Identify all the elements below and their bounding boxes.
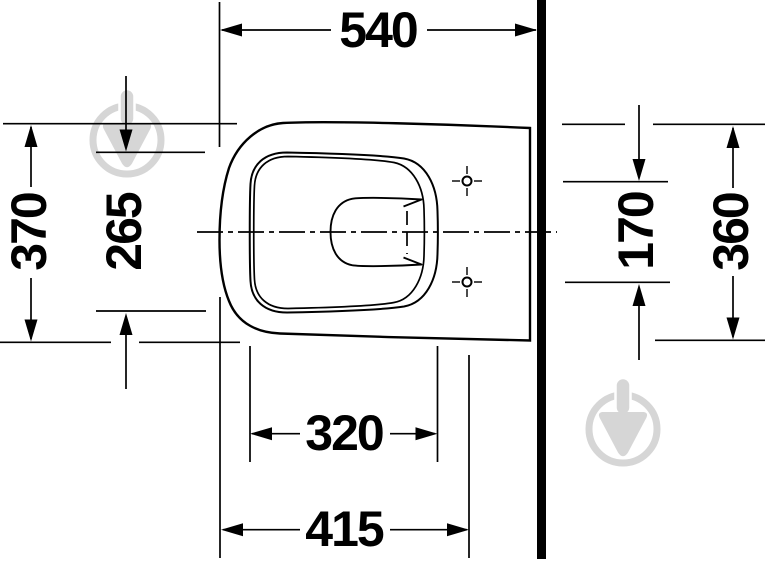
- dimension-fixing-holes-spacing: 170: [608, 105, 664, 360]
- arrowhead-right: [515, 24, 537, 37]
- dimension-bottom-width-inner: 320: [250, 346, 438, 462]
- arrowhead-left: [220, 24, 242, 37]
- arrowhead-left: [250, 427, 272, 440]
- watermark-logo-icon: [589, 378, 657, 463]
- mounting-hole-bottom: [452, 267, 482, 297]
- arrowhead-down: [25, 320, 38, 342]
- arrowhead-up: [120, 313, 133, 335]
- technical-drawing-toilet-top-view: 540 370 265 170: [0, 0, 765, 561]
- wall-section-line: [537, 0, 546, 559]
- mounting-hole-top: [452, 166, 482, 196]
- arrowhead-down: [633, 159, 646, 181]
- dimension-label-bottom-width-inner: 320: [305, 405, 383, 461]
- dimension-label-left-depth-outer: 370: [1, 193, 57, 271]
- dimension-label-right-depth: 360: [703, 193, 759, 271]
- dimension-label-fixing-holes-spacing: 170: [608, 192, 664, 270]
- arrowhead-down: [727, 318, 740, 340]
- arrowhead-right: [416, 427, 438, 440]
- dimension-label-top-width: 540: [339, 2, 417, 58]
- dimension-right-depth: 360: [703, 126, 759, 340]
- dimension-label-bottom-width-outer: 415: [305, 501, 384, 557]
- arrowhead-up: [727, 126, 740, 148]
- arrowhead-right: [447, 523, 469, 536]
- arrowhead-left: [221, 523, 243, 536]
- arrowhead-up: [633, 284, 646, 306]
- dimension-label-left-depth-inner: 265: [96, 192, 152, 271]
- arrowhead-up: [25, 125, 38, 147]
- drawing-canvas: 540 370 265 170: [0, 0, 765, 561]
